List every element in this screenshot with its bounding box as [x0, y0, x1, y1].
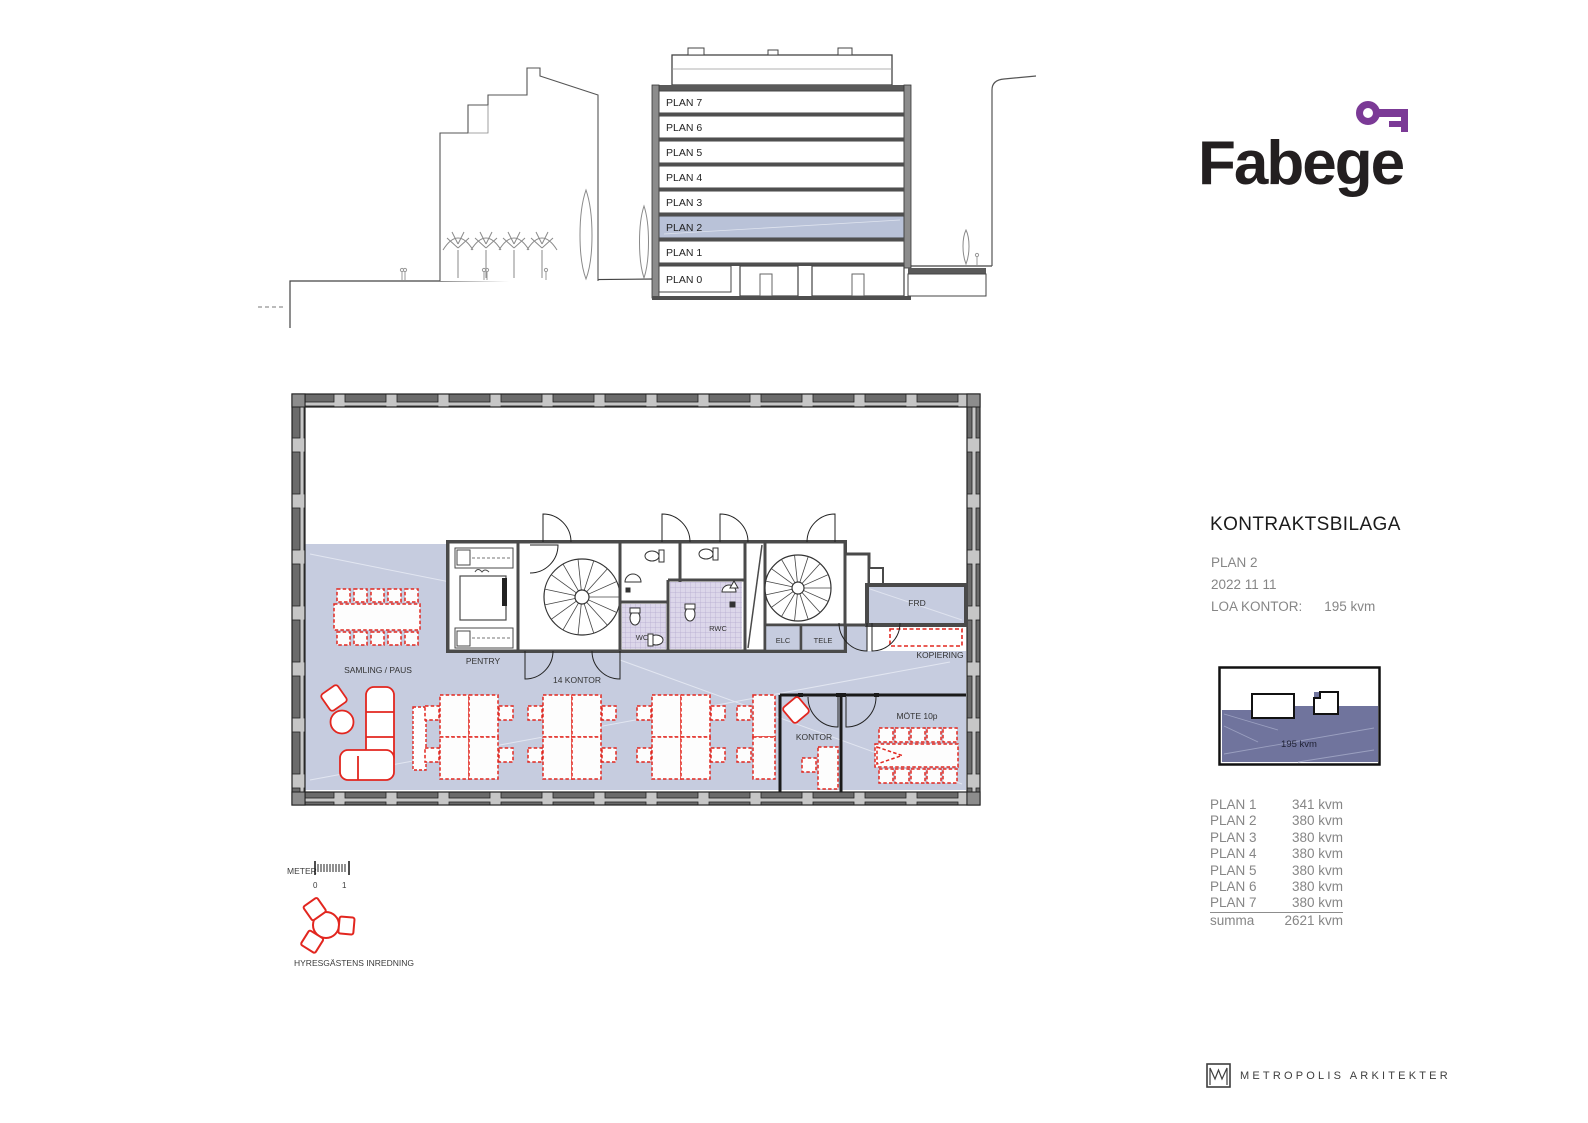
row-label: PLAN 2: [1210, 813, 1280, 829]
contract-date: 2022 11 11: [1211, 574, 1375, 596]
spiral-stair-2: [765, 542, 845, 625]
table-row: PLAN 6380 kvm: [1210, 879, 1343, 895]
table-total-row: summa2621 kvm: [1210, 913, 1343, 929]
fabege-logo: Fabege: [1198, 98, 1418, 193]
elc-tele-rooms: ELC TELE: [765, 625, 845, 651]
room-label-rwc: RWC: [709, 624, 727, 633]
cabinet: [413, 707, 426, 770]
table-row: PLAN 7380 kvm: [1210, 895, 1343, 912]
total-label: summa: [1210, 913, 1280, 929]
section-floor-label-0: PLAN 0: [666, 274, 702, 286]
legend-label: HYRESGÄSTENS INREDNING: [294, 958, 414, 968]
architect-logo: METROPOLIS ARKITEKTER: [1206, 1063, 1451, 1088]
section-floor-label-7: PLAN 7: [666, 97, 702, 109]
ground-line-left: [290, 279, 655, 328]
contract-loa: LOA KONTOR:195 kvm: [1211, 596, 1375, 618]
row-value: 380 kvm: [1280, 846, 1343, 862]
scale-bar: [313, 860, 351, 876]
scale-start: 0: [313, 881, 317, 890]
total-value: 2621 kvm: [1280, 913, 1343, 929]
scale-end: 1: [342, 881, 346, 890]
row-label: PLAN 6: [1210, 879, 1280, 895]
keyplan-area-label: 195 kvm: [1281, 739, 1317, 750]
key-plan-thumbnail: 195 kvm: [1218, 666, 1381, 766]
spiral-stair-1: [518, 542, 620, 651]
row-label: PLAN 5: [1210, 863, 1280, 879]
row-label: PLAN 4: [1210, 846, 1280, 862]
row-value: 380 kvm: [1280, 863, 1343, 879]
floor-plan: ELC TELE FRD KOPIERING: [290, 392, 982, 810]
row-label: PLAN 3: [1210, 830, 1280, 846]
metropolis-m-icon: [1206, 1063, 1231, 1088]
room-label-frd: FRD: [908, 598, 925, 608]
architect-name: METROPOLIS ARKITEKTER: [1240, 1070, 1451, 1082]
section-floor-label-2: PLAN 2: [666, 222, 702, 234]
row-value: 341 kvm: [1280, 797, 1343, 813]
room-label-pentry: PENTRY: [466, 656, 501, 666]
row-value: 380 kvm: [1280, 813, 1343, 829]
fabege-key-icon: [1356, 98, 1414, 132]
samling-table-group: [334, 589, 420, 645]
legend-symbol: [296, 893, 358, 955]
table-row: PLAN 3380 kvm: [1210, 830, 1343, 846]
table-row: PLAN 2380 kvm: [1210, 813, 1343, 829]
room-label-elc: ELC: [776, 636, 791, 645]
section-floor-label-5: PLAN 5: [666, 147, 702, 159]
room-label-wc: WC: [636, 633, 649, 642]
section-floor-label-4: PLAN 4: [666, 172, 702, 184]
room-label-tele: TELE: [814, 636, 833, 645]
pentry-room: [448, 542, 518, 651]
building-section: PLAN 7 PLAN 6 PLAN 5 PLAN 4 PLAN 3 PLAN …: [240, 28, 1040, 328]
row-label: PLAN 1: [1210, 797, 1280, 813]
mote-furniture: [875, 728, 958, 783]
room-label-kontor: KONTOR: [796, 732, 832, 742]
row-value: 380 kvm: [1280, 879, 1343, 895]
room-label-samling: SAMLING / PAUS: [344, 665, 412, 675]
row-label: PLAN 7: [1210, 895, 1280, 911]
table-row: PLAN 1341 kvm: [1210, 797, 1343, 813]
loa-label: LOA KONTOR:: [1211, 599, 1302, 614]
core-block: ELC TELE: [448, 542, 883, 651]
drawing-sheet: PLAN 7 PLAN 6 PLAN 5 PLAN 4 PLAN 3 PLAN …: [0, 0, 1588, 1123]
section-floor-label-6: PLAN 6: [666, 122, 702, 134]
room-label-mote: MÖTE 10p: [896, 711, 937, 721]
row-value: 380 kvm: [1280, 895, 1343, 911]
sectioned-building: PLAN 7 PLAN 6 PLAN 5 PLAN 4 PLAN 3 PLAN …: [652, 48, 986, 300]
loa-value: 195 kvm: [1324, 596, 1375, 618]
room-label-kopiering: KOPIERING: [916, 650, 963, 660]
frd-room: FRD: [867, 585, 966, 625]
neighbour-building: [440, 68, 598, 281]
contract-details: PLAN 2 2022 11 11 LOA KONTOR:195 kvm: [1211, 552, 1375, 618]
contract-title: KONTRAKTSBILAGA: [1210, 514, 1401, 536]
row-value: 380 kvm: [1280, 830, 1343, 846]
room-label-open-office: 14 KONTOR: [553, 675, 601, 685]
shaft-diagonal: [745, 542, 765, 651]
section-floor-label-1: PLAN 1: [666, 247, 702, 259]
table-row: PLAN 5380 kvm: [1210, 863, 1343, 879]
table-row: PLAN 4380 kvm: [1210, 846, 1343, 862]
contract-plan: PLAN 2: [1211, 552, 1375, 574]
fabege-wordmark: Fabege: [1198, 128, 1403, 199]
cliff-line: [992, 76, 1036, 266]
area-table: PLAN 1341 kvm PLAN 2380 kvm PLAN 3380 kv…: [1210, 797, 1343, 929]
section-floor-label-3: PLAN 3: [666, 197, 702, 209]
